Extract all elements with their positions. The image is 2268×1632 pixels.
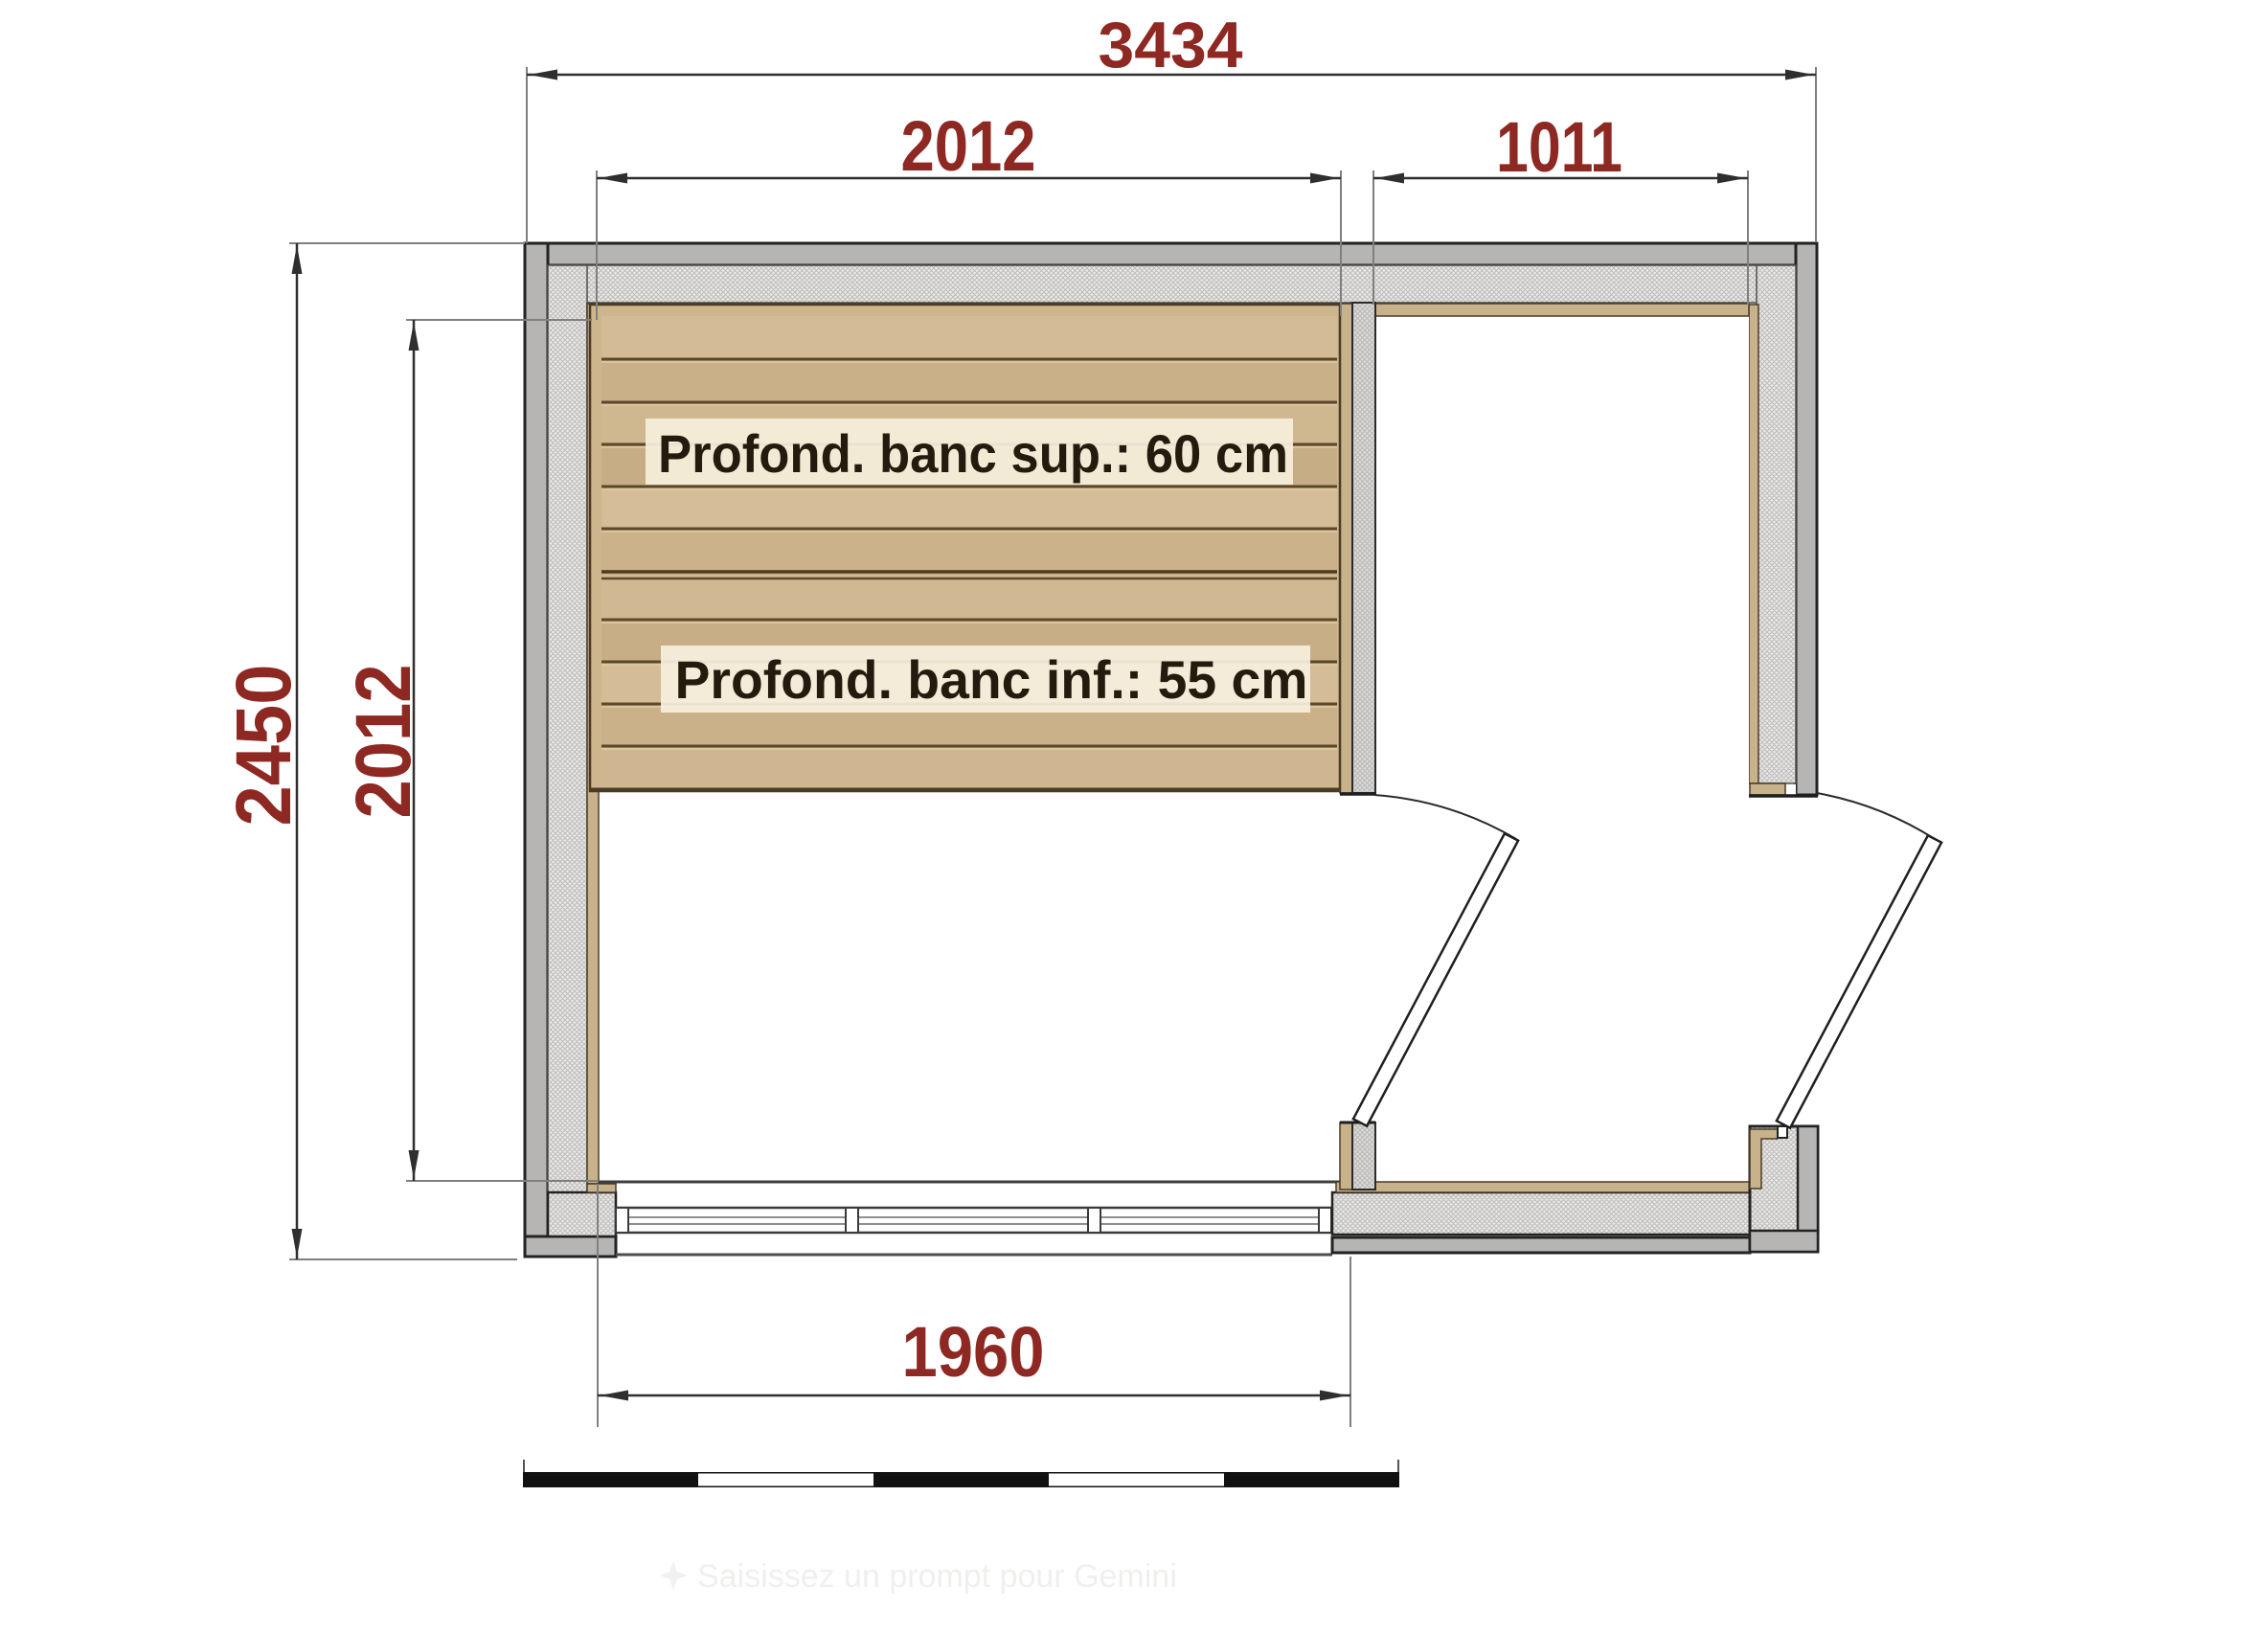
svg-text:Saisissez un prompt pour Gemin: Saisissez un prompt pour Gemini	[697, 1558, 1177, 1595]
svg-text:2012: 2012	[901, 106, 1036, 186]
svg-text:2450: 2450	[220, 665, 307, 827]
svg-text:2012: 2012	[340, 665, 427, 819]
svg-text:1011: 1011	[1496, 107, 1622, 187]
svg-text:Profond. banc sup.: 60 cm: Profond. banc sup.: 60 cm	[658, 423, 1288, 484]
svg-text:Profond. banc inf.: 55 cm: Profond. banc inf.: 55 cm	[675, 649, 1308, 710]
svg-text:1960: 1960	[902, 1312, 1045, 1392]
svg-text:3434: 3434	[1099, 9, 1243, 81]
